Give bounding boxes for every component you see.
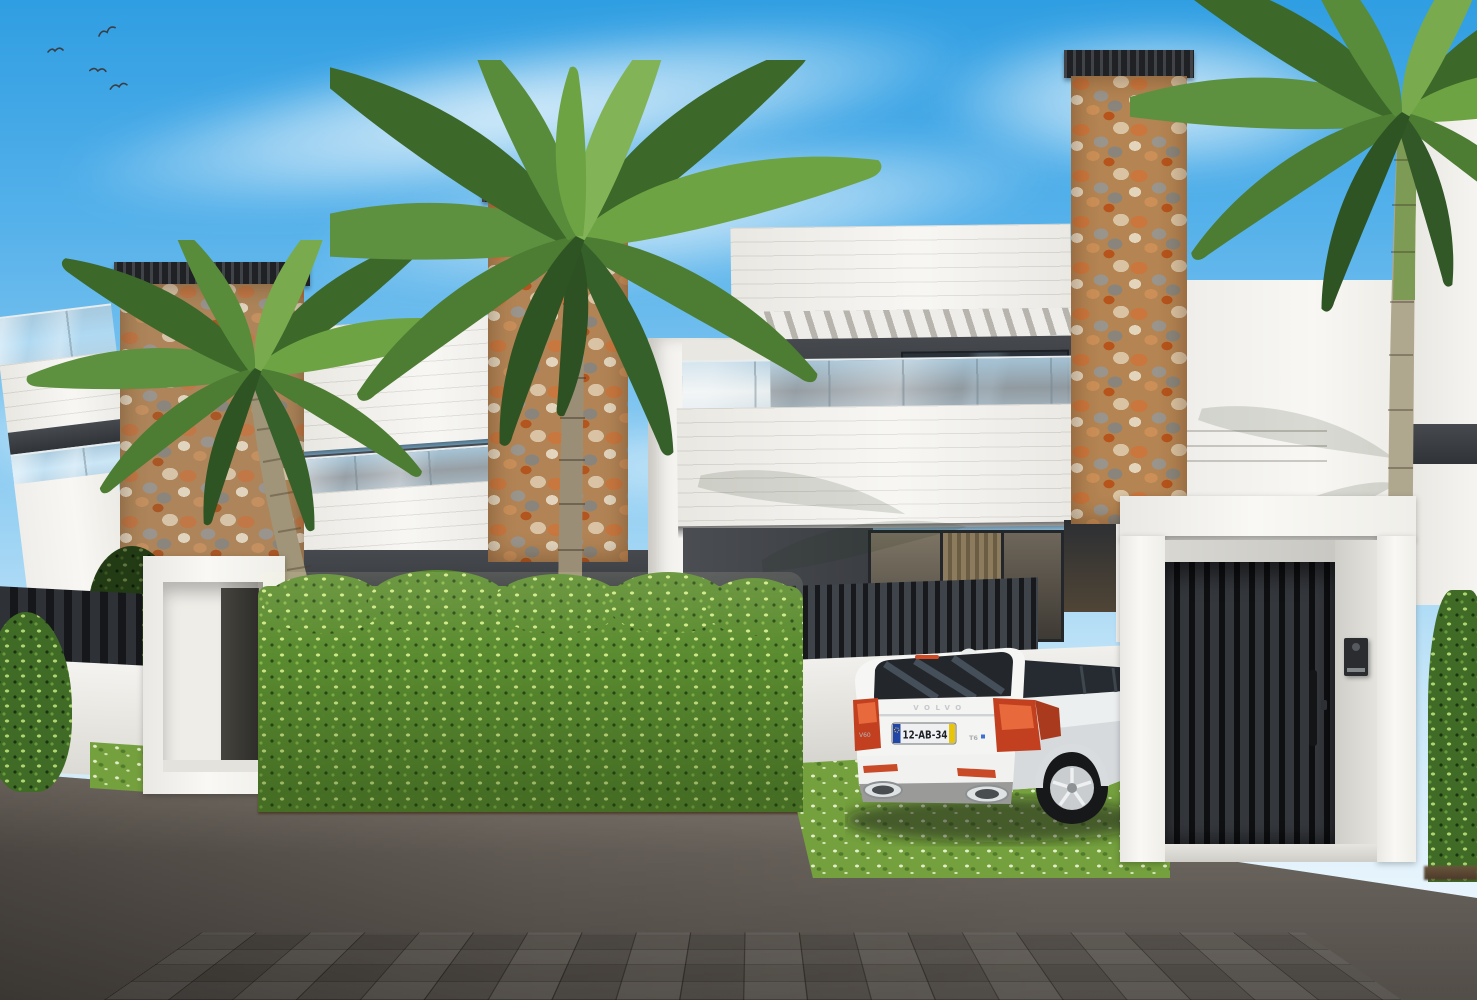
car-chrome-strip — [879, 714, 997, 716]
birds-flock — [20, 10, 180, 120]
portal-left-leg — [1120, 536, 1165, 862]
bird-icon — [48, 48, 63, 52]
portal-top-beam — [1120, 496, 1416, 540]
car-make-lettering: VOLVO — [913, 704, 967, 712]
badge-trim: T6 — [969, 734, 978, 742]
plate-number: 12-AB-34 — [903, 729, 948, 742]
intercom-camera — [1352, 643, 1360, 651]
left-gate-threshold — [163, 760, 263, 772]
bird-icon — [98, 26, 117, 36]
intercom-label — [1347, 668, 1365, 672]
portal-right-leg — [1377, 536, 1416, 862]
left-gate-opening — [163, 582, 263, 772]
right-gate-portal — [1120, 496, 1416, 862]
right-gate-door — [1165, 562, 1335, 844]
gate-handle — [1309, 670, 1317, 746]
portal-threshold — [1165, 844, 1377, 862]
palm-fronds — [330, 60, 887, 458]
bird-icon — [90, 67, 106, 73]
palm-fronds — [1130, 0, 1477, 314]
gate-lock — [1321, 700, 1327, 710]
car-brake-light — [915, 655, 939, 659]
bird-icon — [110, 83, 127, 89]
palm-tree-center — [330, 60, 970, 620]
left-gate-door — [221, 588, 259, 764]
plate-year-band — [949, 724, 955, 743]
right-shrub — [1428, 590, 1477, 882]
hedge — [258, 572, 803, 812]
intercom-panel — [1344, 638, 1368, 676]
car: VOLVO 12-AB-34 V60 T6 — [845, 638, 1147, 856]
intercom-wall — [1335, 540, 1377, 850]
badge-model: V60 — [859, 732, 871, 739]
right-shrub-soil — [1424, 866, 1477, 880]
plate-euro-band — [893, 724, 901, 743]
street-tile-pattern — [0, 932, 1477, 1000]
license-plate: 12-AB-34 — [892, 723, 956, 744]
scene-root: VOLVO 12-AB-34 V60 T6 — [0, 0, 1477, 1000]
hedge-shading — [258, 572, 803, 812]
left-grass-strip — [90, 742, 148, 792]
